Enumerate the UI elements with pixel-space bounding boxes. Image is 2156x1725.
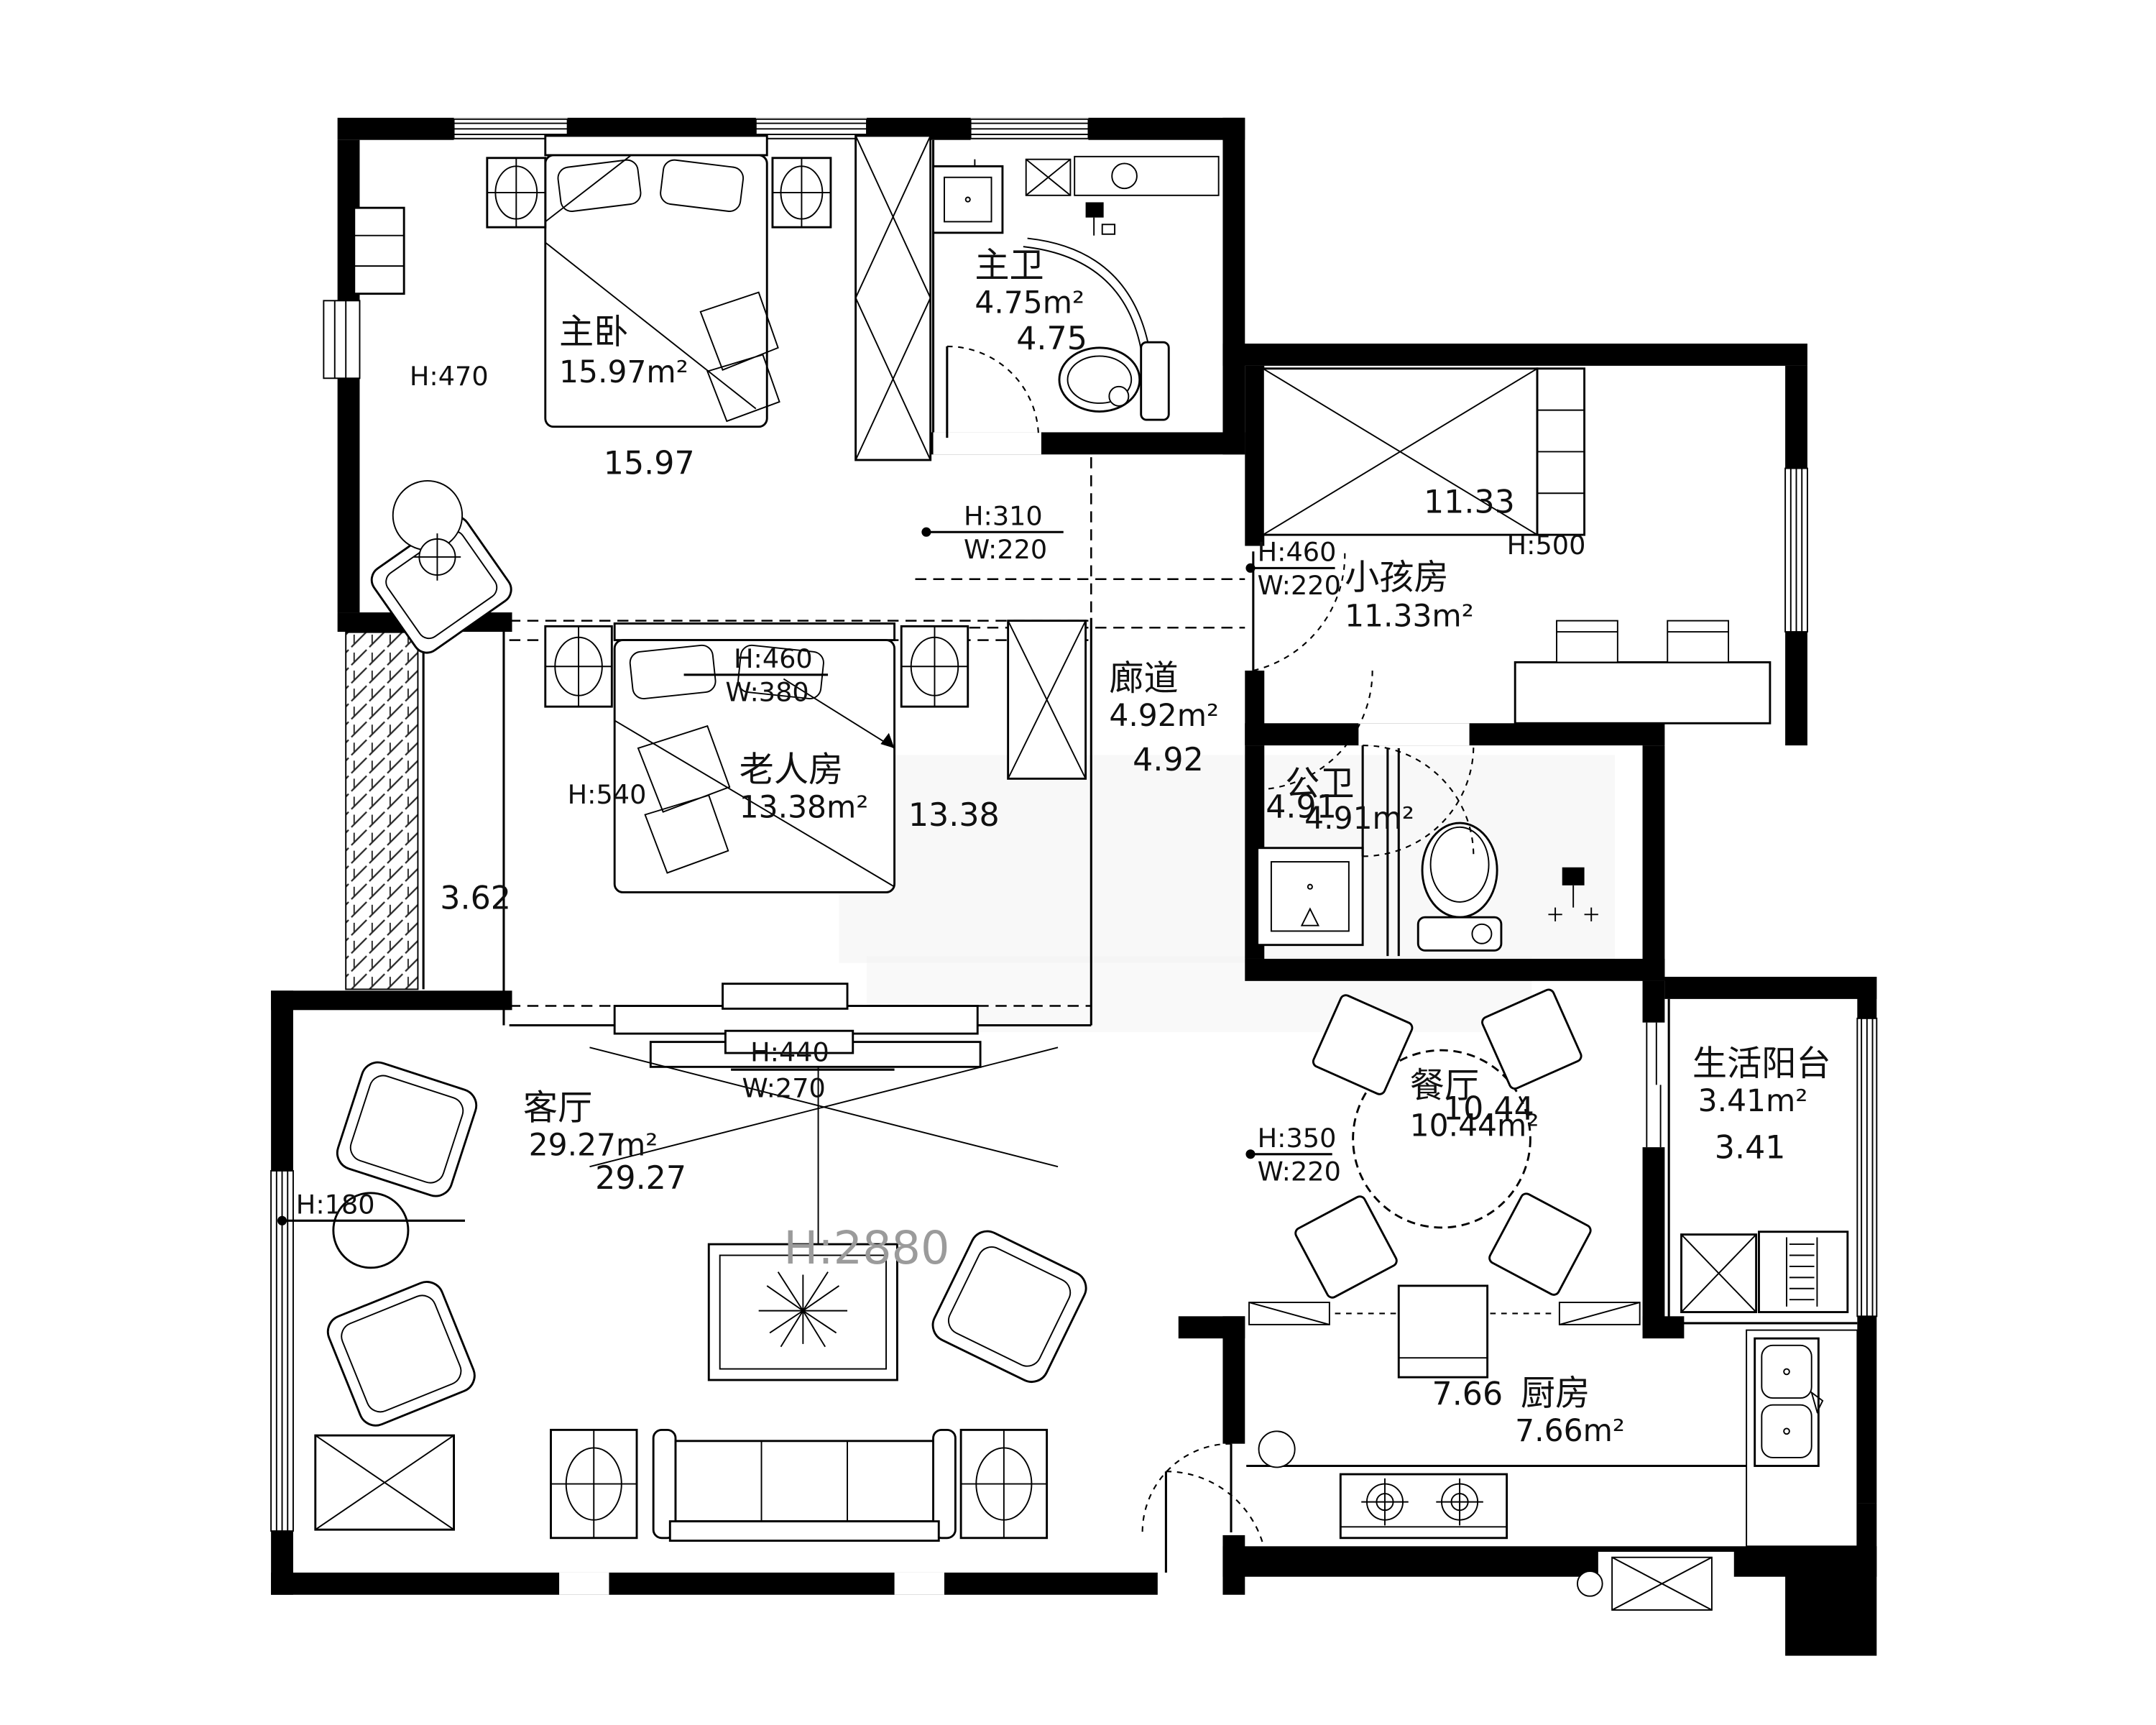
label-w460b-w: W:380 xyxy=(725,676,808,707)
ac-unit-box xyxy=(315,1435,454,1529)
nightstand-elder-right xyxy=(901,626,968,707)
label-w440-w: W:270 xyxy=(742,1073,826,1104)
window-master-left xyxy=(323,300,359,378)
armchair-right xyxy=(927,1225,1092,1387)
sofa xyxy=(653,1430,955,1540)
wardrobe-master xyxy=(856,136,931,460)
chair-dining-bl xyxy=(1294,1195,1399,1299)
label-living-window-h: H:180 xyxy=(296,1190,375,1220)
label-corridor-number: 4.92 xyxy=(1133,742,1204,778)
room-balcony xyxy=(1682,1232,1848,1312)
label-master-height: H:470 xyxy=(410,361,489,392)
label-kids-name: 小孩房 xyxy=(1345,557,1449,597)
nightstand-master-left xyxy=(487,158,545,227)
nightstand-elder-left xyxy=(545,626,612,707)
label-shaft-number: 3.62 xyxy=(440,880,511,917)
vanity-public-bath xyxy=(1258,848,1363,945)
label-w350-h: H:350 xyxy=(1258,1123,1337,1154)
dresser-master xyxy=(354,208,404,294)
label-w310-w: W:220 xyxy=(964,534,1047,565)
label-w310-h: H:310 xyxy=(964,501,1043,532)
lounge-chair-top-left xyxy=(333,1058,480,1200)
room-living xyxy=(315,1031,1092,1540)
corridor-shaft xyxy=(1008,621,1086,779)
label-kids-area: 11.33m² xyxy=(1345,598,1474,633)
small-appliance xyxy=(1259,1431,1295,1467)
label-kitchen-number: 7.66 xyxy=(1432,1376,1503,1413)
label-kids-number: 11.33 xyxy=(1424,484,1515,520)
label-balcony-name: 生活阳台 xyxy=(1692,1044,1831,1084)
label-living-ceiling: H:2880 xyxy=(783,1222,949,1275)
kitchen-sink xyxy=(1755,1338,1823,1466)
label-kitchen-name: 厨房 xyxy=(1521,1374,1590,1414)
label-balcony-number: 3.41 xyxy=(1715,1130,1786,1167)
label-master-area: 15.97m² xyxy=(559,354,688,390)
stove xyxy=(1340,1474,1506,1538)
label-w460b-h: H:460 xyxy=(734,643,813,674)
window-balcony-right xyxy=(1857,1018,1876,1316)
room-master-bedroom xyxy=(354,136,931,658)
lounge-chair-left xyxy=(323,1277,479,1431)
speaker-table-right xyxy=(961,1430,1047,1537)
floor-plan: 主卧 15.97m² 15.97 H:470 主卫 4.75m² 4.75 H:… xyxy=(0,0,2156,1725)
label-pbath-area: 4.91m² xyxy=(1304,801,1414,836)
washer-box-bath xyxy=(1026,157,1219,195)
nightstand-master-right xyxy=(773,158,831,227)
label-w460a-h: H:460 xyxy=(1258,537,1337,568)
door-kitchen xyxy=(1143,1444,1231,1532)
sink-master-bath xyxy=(934,160,1003,233)
chair-dining-bottom xyxy=(1399,1286,1487,1377)
label-bath-number: 4.75 xyxy=(1016,321,1087,357)
window-kids-right xyxy=(1785,469,1807,632)
door-balcony-dining xyxy=(1646,1023,1660,1147)
washing-machine xyxy=(1759,1232,1847,1312)
door-master-bath xyxy=(947,346,1038,438)
label-elder-number: 13.38 xyxy=(908,797,1000,834)
label-kitchen-area: 7.66m² xyxy=(1515,1413,1625,1448)
label-w460a-w: W:220 xyxy=(1258,570,1341,601)
label-master-number: 15.97 xyxy=(604,445,695,482)
label-living-number: 29.27 xyxy=(595,1160,686,1197)
label-bath-name: 主卫 xyxy=(975,246,1044,286)
chair-dining-br xyxy=(1488,1192,1593,1297)
label-master-name: 主卧 xyxy=(559,312,628,352)
label-bath-area: 4.75m² xyxy=(975,285,1084,321)
label-w350-w: W:220 xyxy=(1258,1156,1341,1187)
label-dining-area: 10.44m² xyxy=(1410,1108,1539,1144)
label-elder-area: 13.38m² xyxy=(740,789,869,824)
label-corridor-area: 4.92m² xyxy=(1109,698,1219,733)
label-kids-height: H:500 xyxy=(1507,530,1586,561)
label-living-name: 客厅 xyxy=(523,1088,592,1128)
label-elder-height: H:540 xyxy=(568,779,647,810)
ac-box-balcony xyxy=(1682,1235,1756,1312)
label-w440-h: H:440 xyxy=(750,1037,829,1068)
label-balcony-area: 3.41m² xyxy=(1698,1083,1808,1118)
label-elder-name: 老人房 xyxy=(740,750,844,790)
speaker-table-left xyxy=(551,1430,637,1537)
toilet-public-bath xyxy=(1418,823,1501,950)
desk-kids xyxy=(1515,621,1770,724)
label-living-area: 29.27m² xyxy=(529,1128,658,1163)
label-corridor-name: 廊道 xyxy=(1109,658,1178,699)
